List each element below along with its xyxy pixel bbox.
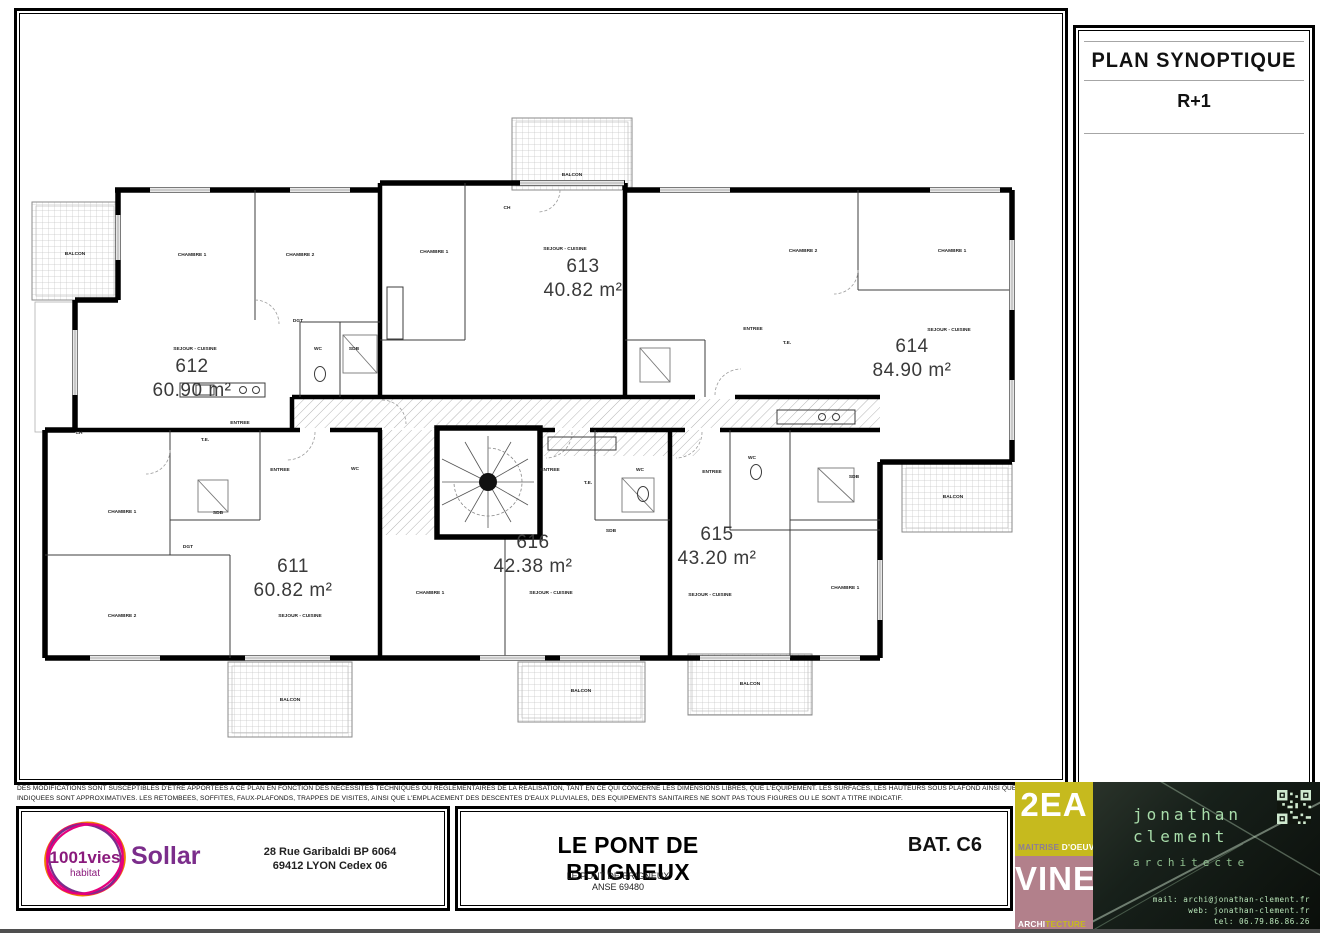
room-label: SEJOUR - CUISINE xyxy=(543,246,587,252)
page-edge xyxy=(0,929,1320,933)
apartment-number: 614 xyxy=(895,336,928,357)
room-label: SDB xyxy=(213,510,224,516)
room-label: T.E. xyxy=(783,340,791,346)
rule xyxy=(1084,80,1304,81)
stair-core xyxy=(479,473,497,491)
architect-name: jonathan clement xyxy=(1133,804,1242,848)
svg-text:1001vies: 1001vies xyxy=(50,848,121,867)
room-label: SDB xyxy=(349,346,360,352)
room-label: T.E. xyxy=(584,480,592,486)
contact-web: web: jonathan-clement.fr xyxy=(1153,905,1310,916)
room-label: SDB xyxy=(606,528,617,534)
room-label: ENTREE xyxy=(270,467,290,473)
svg-text:habitat: habitat xyxy=(70,868,100,879)
room-label: SDB xyxy=(849,474,860,480)
apartment-number: 612 xyxy=(175,356,208,377)
room-label: CHAMBRE 1 xyxy=(416,590,445,596)
apartment-number: 613 xyxy=(566,256,599,277)
room-label: ENTREE xyxy=(230,420,250,426)
room-label: BALCON xyxy=(943,494,964,500)
apartment-area: 84.90 m² xyxy=(873,360,952,381)
room-label: BALCON xyxy=(571,688,592,694)
room-label: BALCON xyxy=(65,251,86,257)
room-label: ENTREE xyxy=(743,326,763,332)
apartment-area: 42.38 m² xyxy=(494,556,573,577)
room-label: SEJOUR - CUISINE xyxy=(927,327,971,333)
room-label: CHAMBRE 2 xyxy=(108,613,137,619)
apartment-area: 60.82 m² xyxy=(254,580,333,601)
2ea-logo: 2EA MAITRISE D'OEUVRE xyxy=(1015,782,1093,856)
contact-mail: mail: archi@jonathan-clement.fr xyxy=(1153,894,1310,905)
rule xyxy=(1084,133,1304,134)
apartment-area: 60.90 m² xyxy=(153,380,232,401)
disclaimer-text: DES MODIFICATIONS SONT SUSCEPTIBLES D'ET… xyxy=(17,784,1011,804)
vine-logo: VINE ARCHITECTURE xyxy=(1015,856,1093,933)
room-label: CHAMBRE 1 xyxy=(108,509,137,515)
room-label: CH xyxy=(504,205,511,211)
room-label: WC xyxy=(748,455,757,461)
apartment-number: 616 xyxy=(516,532,549,553)
sheet-title: PLAN SYNOPTIQUE xyxy=(1082,49,1306,73)
room-label: CHAMBRE 1 xyxy=(420,249,449,255)
room-label: CHAMBRE 1 xyxy=(831,585,860,591)
room-label: BALCON xyxy=(280,697,301,703)
drawing-sheet: 61260.90 m²61340.82 m²61484.90 m²61160.8… xyxy=(0,0,1320,933)
apartment-area: 40.82 m² xyxy=(544,280,623,301)
client-block: 1001vies habitat Sollar 28 Rue Garibaldi… xyxy=(16,806,450,911)
room-label: SEJOUR - CUISINE xyxy=(529,590,573,596)
disclaimer-line1: DES MODIFICATIONS SONT SUSCEPTIBLES D'ET… xyxy=(17,784,1011,794)
rule xyxy=(1084,41,1304,42)
agency-logos: 2EA MAITRISE D'OEUVRE VINE ARCHITECTURE xyxy=(1015,782,1093,933)
room-label: BALCON xyxy=(740,681,761,687)
room-label: SEJOUR - CUISINE xyxy=(278,613,322,619)
terrace-outline xyxy=(35,302,75,432)
apartment-number: 611 xyxy=(277,556,309,577)
room-label: CHAMBRE 1 xyxy=(178,252,207,258)
room-label: CHAMBRE 2 xyxy=(286,252,315,258)
sollar-wordmark: Sollar xyxy=(131,842,200,871)
room-label: T.E. xyxy=(201,437,209,443)
project-subtitle: LE PONT DE BRIGNEUX ANSE 69480 xyxy=(518,871,718,893)
room-label: WC xyxy=(351,466,360,472)
room-label: CH xyxy=(76,430,83,436)
room-label: ENTREE xyxy=(540,467,560,473)
room-label: CHAMBRE 1 xyxy=(938,248,967,254)
1001vies-habitat-logo: 1001vies habitat xyxy=(41,815,129,903)
project-block: LE PONT DE BRIGNEUX BAT. C6 LE PONT DE B… xyxy=(455,806,1013,911)
apartment-area: 43.20 m² xyxy=(678,548,757,569)
room-label: DGT xyxy=(293,318,303,324)
floor-plan: 61260.90 m²61340.82 m²61484.90 m²61160.8… xyxy=(14,8,1065,782)
sheet-level: R+1 xyxy=(1076,91,1312,112)
apartment-number: 615 xyxy=(700,524,733,545)
disclaimer-line2: INDIQUEES SONT APPROXIMATIVES. LES RETOM… xyxy=(17,794,1011,804)
business-card: jonathan clement architecte xyxy=(1093,782,1320,933)
room-label: DGT xyxy=(183,544,193,550)
building-label: BAT. C6 xyxy=(908,834,982,857)
room-label: BALCON xyxy=(562,172,583,178)
contact-info: mail: archi@jonathan-clement.fr web: jon… xyxy=(1153,894,1310,927)
room-label: SEJOUR - CUISINE xyxy=(173,346,217,352)
room-label: WC xyxy=(314,346,323,352)
room-label: CHAMBRE 2 xyxy=(789,248,818,254)
room-label: WC xyxy=(636,467,645,473)
stairwell xyxy=(437,428,540,537)
room-label: SEJOUR - CUISINE xyxy=(688,592,732,598)
architect-card: 2EA MAITRISE D'OEUVRE VINE ARCHITECTURE … xyxy=(1015,782,1320,933)
architect-role: architecte xyxy=(1133,856,1249,869)
room-label: ENTREE xyxy=(702,469,722,475)
qr-code-icon xyxy=(1277,790,1311,824)
client-address: 28 Rue Garibaldi BP 6064 69412 LYON Cede… xyxy=(255,845,405,873)
contact-tel: tel: 06.79.86.86.26 xyxy=(1153,916,1310,927)
